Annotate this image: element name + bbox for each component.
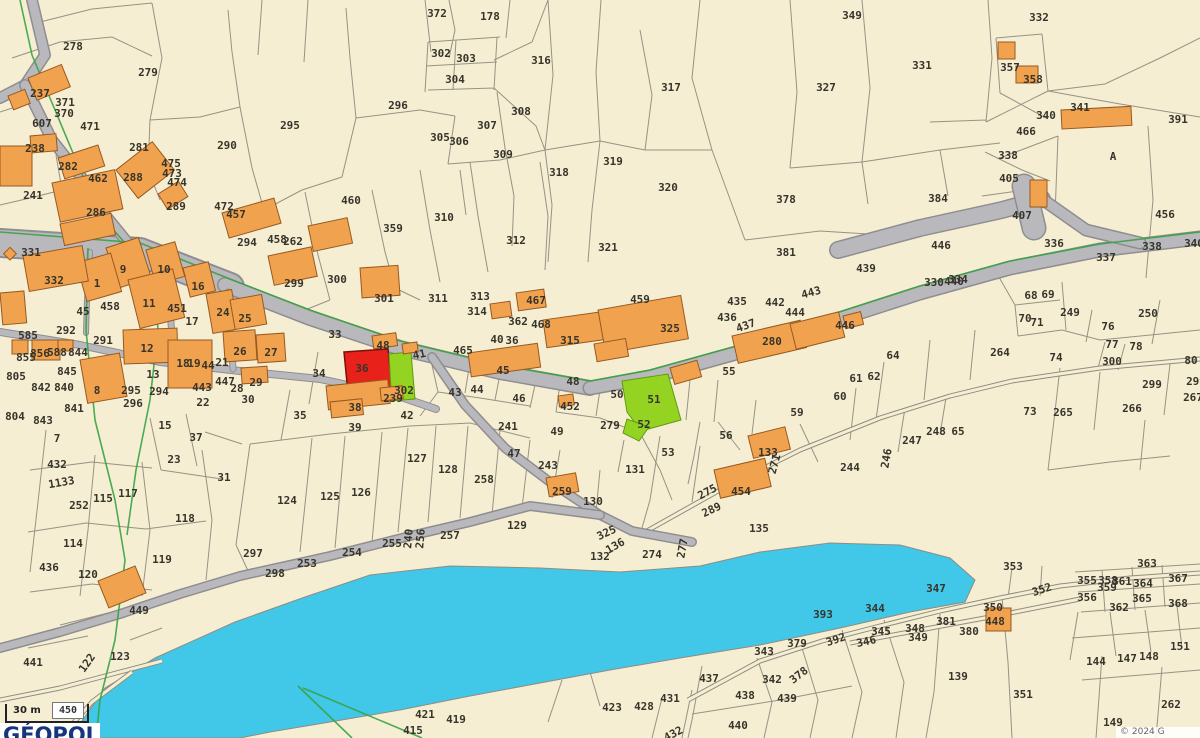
parcel-label: 588: [47, 346, 67, 359]
parcel-label: 241: [498, 420, 518, 433]
parcel-label: 421: [415, 708, 435, 721]
parcel-label: 391: [1168, 113, 1188, 126]
parcel-label: 378: [787, 664, 811, 686]
parcel-label: 38: [348, 401, 361, 414]
parcel-label: 33: [328, 328, 341, 341]
parcel-label: 474: [167, 176, 187, 189]
parcel-label: 349: [842, 9, 862, 22]
parcel-label: 346: [855, 633, 878, 650]
parcel-label: 127: [407, 452, 427, 465]
parcel-label: 56: [719, 429, 733, 442]
parcel-label: 381: [776, 246, 796, 259]
parcel-label: 117: [118, 487, 138, 500]
parcel-label: 123: [110, 650, 130, 663]
parcel-label: 274: [642, 548, 662, 561]
scale-box: 450: [52, 702, 84, 719]
parcel-label: 46: [512, 392, 526, 405]
parcel-label: 438: [735, 689, 755, 702]
scale-bar-label: 30 m: [13, 705, 41, 716]
parcel-label: 446: [835, 319, 855, 332]
parcel-label: 48: [376, 339, 389, 352]
parcel-label: 358: [1023, 73, 1043, 86]
parcel-label: 296: [123, 397, 143, 410]
parcel-label: 288: [123, 171, 143, 184]
parcel-label: 37: [189, 431, 202, 444]
parcel-label: 330: [924, 276, 944, 289]
parcel-label: 607: [32, 117, 52, 130]
parcel-label: 17: [185, 315, 198, 328]
parcel-label: 36: [505, 334, 519, 347]
parcel-label: 60: [833, 390, 846, 403]
parcel-label: 19: [187, 357, 200, 370]
parcel-label: 24: [216, 306, 230, 319]
parcel-label: 262: [283, 235, 303, 248]
parcel-label: 262: [1161, 698, 1181, 711]
parcel-label: 327: [816, 81, 836, 94]
parcel-label: 74: [1049, 351, 1063, 364]
parcel-label: 135: [749, 522, 769, 535]
parcel-label: 444: [785, 306, 805, 319]
parcel-label: 844: [68, 346, 88, 359]
parcel-label: 277: [674, 537, 690, 559]
parcel-label: 350: [983, 601, 1003, 614]
parcel-label: 294: [237, 236, 257, 249]
parcel-label: 353: [1003, 560, 1023, 573]
parcel-label: 254: [342, 546, 362, 559]
parcel-label: 441: [23, 656, 43, 669]
parcel-label: 238: [25, 142, 45, 155]
parcel-label: 7: [54, 432, 61, 445]
parcel-label: 347: [926, 582, 946, 595]
parcel-label: 147: [1117, 652, 1137, 665]
parcel-label: 246: [878, 447, 894, 469]
parcel-label: 467: [526, 294, 546, 307]
parcel-label: 845: [57, 365, 77, 378]
parcel-label: 804: [5, 410, 25, 423]
parcel-label: 436: [39, 561, 59, 574]
parcel-label: 310: [434, 211, 454, 224]
parcel-label: 344: [865, 602, 885, 615]
parcel-label: 299: [1142, 378, 1162, 391]
parcel-label: 295: [121, 384, 141, 397]
parcel-label: 462: [88, 172, 108, 185]
parcel-label: 465: [453, 344, 473, 357]
parcel-label: 289: [166, 200, 186, 213]
parcel-label: 40: [490, 333, 503, 346]
parcel-label: 64: [886, 349, 900, 362]
parcel-label: 452: [560, 400, 580, 413]
parcel-label: 336: [1044, 237, 1064, 250]
parcel-label: 39: [348, 421, 361, 434]
parcel-label: 259: [552, 485, 572, 498]
parcel-label: 337: [1096, 251, 1116, 264]
parcel-label: 316: [531, 54, 551, 67]
parcel-label: 239: [383, 392, 403, 405]
parcel-label: 362: [508, 315, 528, 328]
parcel-label: 34: [312, 367, 326, 380]
parcel-label: 249: [1060, 306, 1080, 319]
parcel-label: 148: [1139, 650, 1159, 663]
parcel-label: 77: [1105, 338, 1118, 351]
geoportal-logo-text: GÉOPOL: [3, 723, 99, 738]
parcel-label: 35: [293, 409, 306, 422]
parcel-label: 139: [948, 670, 968, 683]
parcel-label: 443: [192, 381, 212, 394]
parcel-label: 257: [440, 529, 460, 542]
parcel-label: 321: [598, 241, 618, 254]
parcel-label: 585: [18, 329, 38, 342]
parcel-label: 305: [430, 131, 450, 144]
parcel-label: 309: [493, 148, 513, 161]
parcel-label: 13: [146, 368, 159, 381]
parcel-label: 357: [1000, 61, 1020, 74]
parcel-label: 471: [80, 120, 100, 133]
parcel-label: 297: [243, 547, 263, 560]
parcel-label: 349: [908, 631, 928, 644]
parcel-label: 16: [191, 280, 205, 293]
parcel-label: 45: [496, 364, 509, 377]
parcel-label: 428: [634, 700, 654, 713]
parcel-label: 442: [765, 296, 785, 309]
parcel-label: 372: [427, 7, 447, 20]
parcel-label: 460: [341, 194, 361, 207]
parcel-label: 26: [233, 345, 247, 358]
parcel-label: 302: [431, 47, 451, 60]
parcel-label: 267: [1183, 391, 1200, 404]
parcel-label: 843: [33, 414, 53, 427]
parcel-label: 359: [1097, 581, 1117, 594]
parcel-label: 48: [566, 375, 579, 388]
parcel-label: 343: [754, 645, 774, 658]
parcel-label: 280: [762, 335, 782, 348]
parcel-label: 459: [630, 293, 650, 306]
parcel-label: 65: [951, 425, 964, 438]
parcel-label: 11: [142, 297, 156, 310]
parcel-label: 393: [813, 608, 833, 621]
parcel-label: 291: [93, 334, 113, 347]
parcel-label: 318: [549, 166, 569, 179]
parcel-label: 292: [56, 324, 76, 337]
parcel-label: 265: [1053, 406, 1073, 419]
parcel-label: 279: [600, 419, 620, 432]
parcel-label: 29: [249, 376, 262, 389]
parcel-label: 258: [474, 473, 494, 486]
parcel-label: 365: [1132, 592, 1152, 605]
parcel-label: 122: [76, 651, 98, 675]
parcel-label: 304: [445, 73, 465, 86]
map-viewport[interactable]: 3721783493323313273173163023033042963053…: [0, 0, 1200, 738]
geoportal-logo[interactable]: GÉOPOL: [0, 723, 100, 738]
parcel-label: 144: [1086, 655, 1106, 668]
parcel-label: 805: [6, 370, 26, 383]
parcel-label: 362: [1109, 601, 1129, 614]
parcel-label: 308: [511, 105, 531, 118]
parcel-label: 30: [241, 393, 254, 406]
parcel-label: 842: [31, 381, 51, 394]
parcel-label: 247: [902, 434, 922, 447]
parcel-label: 301: [374, 292, 394, 305]
parcel-label: 446: [931, 239, 951, 252]
parcel-label: 255: [382, 537, 402, 550]
parcel-label: 298: [265, 567, 285, 580]
parcel-label: 384: [928, 192, 948, 205]
parcel-label: 440: [728, 719, 748, 732]
parcel-label: 303: [456, 52, 476, 65]
parcel-label: 840: [54, 381, 74, 394]
parcel-label: 62: [867, 370, 880, 383]
parcel-label: 278: [63, 40, 83, 53]
parcel-label: 252: [69, 499, 89, 512]
parcel-label: 256: [413, 528, 428, 549]
parcel-label: 299: [1186, 375, 1200, 388]
parcel-label: 363: [1137, 557, 1157, 570]
parcel-label: 325: [660, 322, 680, 335]
parcel-label: 15: [158, 419, 171, 432]
parcel-label: 68: [1024, 289, 1037, 302]
parcel-label: 275: [696, 482, 720, 503]
parcel-label: 125: [320, 490, 340, 503]
parcel-label: 266: [1122, 402, 1142, 415]
parcel-label: 45: [76, 305, 89, 318]
parcel-label: 342: [762, 673, 782, 686]
parcel-label: 49: [550, 425, 563, 438]
parcel-label: 300: [1102, 355, 1122, 368]
parcel-label: 44: [201, 359, 215, 372]
parcel-label: 356: [1077, 591, 1097, 604]
parcel-label: 22: [196, 396, 209, 409]
parcel-label: 289: [700, 500, 724, 520]
parcel-label: 405: [999, 172, 1019, 185]
cadastral-map: 3721783493323313273173163023033042963053…: [0, 0, 1200, 738]
parcel-label: 244: [840, 461, 860, 474]
parcel-label: 25: [238, 312, 251, 325]
parcel-label: 253: [297, 557, 317, 570]
parcel-label: 306: [449, 135, 469, 148]
parcel-label: 124: [277, 494, 297, 507]
parcel-label: 331: [912, 59, 932, 72]
parcel-label: 352: [1030, 580, 1053, 599]
parcel-label: 341: [1070, 101, 1090, 114]
parcel-label: 415: [403, 724, 423, 737]
parcel-label: 370: [54, 107, 74, 120]
parcel-label: 71: [1030, 316, 1044, 329]
parcel-label: 115: [93, 492, 113, 505]
parcel-label: 355: [1077, 574, 1097, 587]
parcel-label: 1133: [47, 474, 75, 491]
parcel-label: 44: [470, 383, 484, 396]
parcel-label: 241: [23, 189, 43, 202]
parcel-label: 317: [661, 81, 681, 94]
parcel-label: 314: [467, 305, 487, 318]
parcel-label: 178: [480, 10, 500, 23]
parcel-label: 454: [731, 485, 751, 498]
parcel-label: 338: [998, 149, 1018, 162]
parcel-label: 128: [438, 463, 458, 476]
parcel-label: 380: [959, 625, 979, 638]
parcel-label: 50: [610, 388, 623, 401]
parcel-label: 423: [602, 701, 622, 714]
parcel-label: 80: [1184, 354, 1197, 367]
parcel-label: 294: [149, 385, 169, 398]
parcel-label: 359: [383, 222, 403, 235]
parcel-label: 340: [1184, 237, 1200, 250]
parcel-label: 381: [936, 615, 956, 628]
parcel-label: 53: [661, 446, 674, 459]
parcel-label: 364: [1133, 577, 1153, 590]
parcel-label: 47: [507, 447, 520, 460]
parcel-label: 119: [152, 553, 172, 566]
parcel-label: 43: [448, 386, 461, 399]
parcel-label: 432: [47, 458, 67, 471]
parcel-label: 296: [388, 99, 408, 112]
parcel-label: 73: [1023, 405, 1036, 418]
parcel-label: 431: [660, 692, 680, 705]
parcel-label: 432: [662, 724, 686, 738]
parcel-label: 243: [538, 459, 558, 472]
parcel-label: 351: [1013, 688, 1033, 701]
parcel-label: 279: [138, 66, 158, 79]
parcel-label: 61: [849, 372, 863, 385]
parcel-label: 437: [699, 672, 719, 685]
parcel-label: 290: [217, 139, 237, 152]
parcel-label: 131: [625, 463, 645, 476]
parcel-label: 248: [926, 425, 946, 438]
parcel-label: 250: [1138, 307, 1158, 320]
parcel-label: 331: [21, 246, 41, 259]
parcel-label: 132: [590, 550, 610, 563]
parcel-label: 12: [140, 342, 153, 355]
parcel-label: 468: [531, 318, 551, 331]
parcel-label: 338: [1142, 240, 1162, 253]
parcel-label: 237: [30, 87, 50, 100]
parcel-label: 319: [603, 155, 623, 168]
parcel-label: 448: [985, 615, 1005, 628]
parcel-label: 457: [226, 208, 246, 221]
parcel-label: 51: [647, 393, 661, 406]
parcel-label: 27: [264, 346, 277, 359]
parcel-label: 340: [1036, 109, 1056, 122]
parcel-label: 458: [100, 300, 120, 313]
parcel-label: 307: [477, 119, 497, 132]
parcel-label: 299: [284, 277, 304, 290]
parcel-label: 286: [86, 206, 106, 219]
parcel-label: 456: [1155, 208, 1175, 221]
parcel-label: 312: [506, 234, 526, 247]
parcel-label: 282: [58, 160, 78, 173]
parcel-label: 264: [990, 346, 1010, 359]
parcel-label: 31: [217, 471, 231, 484]
parcel-label: 443: [800, 284, 823, 302]
parcel-label: 439: [856, 262, 876, 275]
parcel-label: 118: [175, 512, 195, 525]
parcel-label: 78: [1129, 340, 1142, 353]
parcel-label: 42: [400, 409, 413, 422]
parcel-label: 55: [722, 365, 735, 378]
parcel-label: 59: [790, 406, 803, 419]
parcel-label: 315: [560, 334, 580, 347]
parcel-label: 76: [1101, 320, 1115, 333]
parcel-label: 841: [64, 402, 84, 415]
parcel-label: 126: [351, 486, 371, 499]
parcel-label: 466: [1016, 125, 1036, 138]
parcel-label: 449: [129, 604, 149, 617]
parcel-label: 8: [94, 384, 101, 397]
parcel-label: 439: [777, 692, 797, 705]
parcel-label: 368: [1168, 597, 1188, 610]
parcel-label: 1: [94, 277, 101, 290]
parcel-label: 129: [507, 519, 527, 532]
parcel-label: 114: [63, 537, 83, 550]
parcel-label: 313: [470, 290, 490, 303]
parcel-label: A: [1110, 150, 1117, 163]
parcel-label: 295: [280, 119, 300, 132]
parcel-label: 36: [355, 362, 369, 375]
parcel-label: 378: [776, 193, 796, 206]
parcel-label: 332: [1029, 11, 1049, 24]
parcel-label: 311: [428, 292, 448, 305]
parcel-label: 21: [215, 356, 229, 369]
parcel-label: 407: [1012, 209, 1032, 222]
parcel-label: 10: [157, 263, 170, 276]
parcel-label: 23: [167, 453, 180, 466]
parcel-label: 320: [658, 181, 678, 194]
parcel-label: 334: [948, 273, 968, 286]
parcel-label: 120: [78, 568, 98, 581]
parcel-label: 151: [1170, 640, 1190, 653]
parcel-label: 9: [120, 263, 127, 276]
parcel-label: 367: [1168, 572, 1188, 585]
parcel-label: 419: [446, 713, 466, 726]
parcel-label: 300: [327, 273, 347, 286]
parcel-label: 52: [637, 418, 650, 431]
parcel-label: 379: [787, 637, 807, 650]
parcel-label: 332: [44, 274, 64, 287]
parcel-label: 281: [129, 141, 149, 154]
parcel-label: 451: [167, 302, 187, 315]
parcel-label: 435: [727, 295, 747, 308]
parcel-label: 130: [583, 495, 603, 508]
parcel-label: 69: [1041, 288, 1054, 301]
parcel-label: 392: [824, 630, 847, 649]
copyright-notice: © 2024 G: [1116, 727, 1200, 738]
